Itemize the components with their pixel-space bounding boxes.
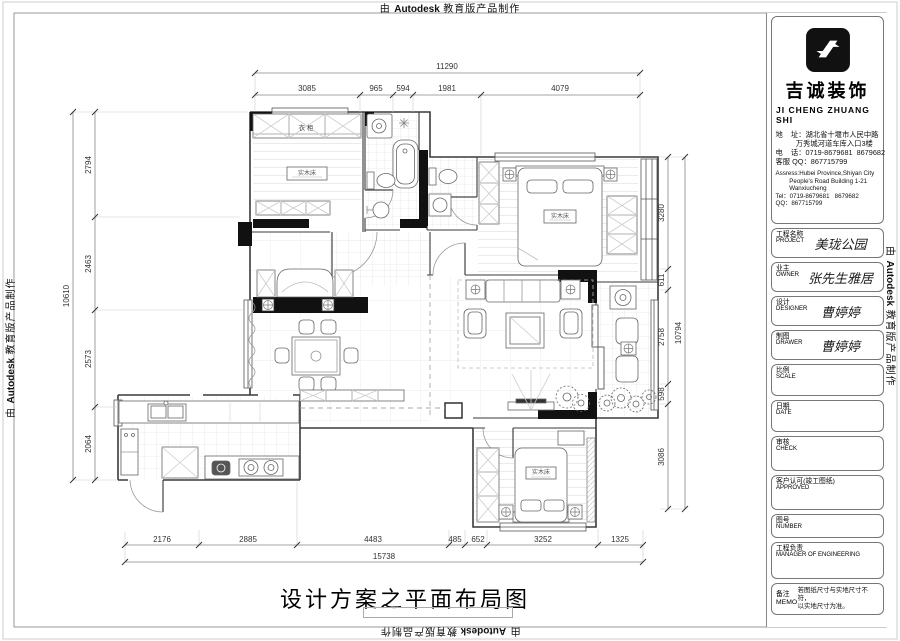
company-qq-line: 客服 QQ：867715799 (776, 157, 880, 166)
svg-text:965: 965 (369, 84, 383, 93)
structural-column (445, 403, 462, 418)
drawing-sheet: 衣柜 实木床 (0, 0, 900, 641)
svg-text:2064: 2064 (84, 435, 93, 453)
svg-text:10610: 10610 (62, 284, 71, 307)
field-drawer: 制图DRAWER 曹婷婷 (771, 330, 884, 360)
svg-text:3085: 3085 (298, 84, 316, 93)
svg-text:3280: 3280 (657, 204, 666, 222)
field-designer-value: 曹婷婷 (772, 297, 883, 325)
company-address-line: 万秀城河道车库入口3楼 (776, 139, 880, 148)
wardrobe-label: 衣柜 (299, 123, 316, 132)
field-engineering: 工程负责MANAGER OF ENGINEERING (771, 542, 884, 579)
field-approved: 客户认可(竣工图纸)APPROVED (771, 475, 884, 510)
third-bed-label: 实木床 (532, 468, 550, 476)
floor-plan-canvas: 衣柜 实木床 (0, 0, 900, 641)
svg-text:611: 611 (657, 273, 666, 286)
svg-text:2885: 2885 (239, 535, 257, 544)
watermark-right: 由 Autodesk 教育版产品制作 (884, 246, 899, 387)
field-project: 工程名称PROJECT 美珑公园 (771, 228, 884, 258)
company-name-en: JI CHENG ZHUANG SHI (776, 105, 879, 125)
title-block: 吉诚装饰 JI CHENG ZHUANG SHI 地 址：湖北省十堰市人民中路 … (766, 13, 887, 627)
field-memo: 备注MEMO 若图纸尺寸与实地尺寸不符，以实地尺寸为准。 (771, 583, 884, 615)
svg-text:594: 594 (396, 84, 410, 93)
company-address-en: Wanxiucheng (776, 185, 880, 193)
svg-text:11290: 11290 (436, 62, 458, 71)
field-project-value: 美珑公园 (772, 229, 883, 257)
svg-text:485: 485 (448, 535, 462, 544)
company-address-en: People's Road Building 1-21 (776, 178, 880, 186)
field-owner: 业主OWNER 张先生雅居 (771, 262, 884, 292)
svg-text:4079: 4079 (551, 84, 569, 93)
company-tel-en: Tel：0719-8679681 8679682 (776, 193, 880, 201)
svg-text:2758: 2758 (657, 328, 666, 346)
svg-text:652: 652 (471, 535, 485, 544)
field-date: 日期DATE (771, 400, 884, 432)
svg-text:2463: 2463 (84, 255, 93, 273)
field-owner-value: 张先生雅居 (772, 263, 883, 291)
field-number: 图号NUMBER (771, 514, 884, 538)
svg-text:2176: 2176 (153, 535, 171, 544)
master-bed-label: 实木床 (551, 212, 569, 220)
company-phone-line: 电 话：0719-8679681 8679682 (776, 148, 880, 157)
field-designer: 设计DESIGNER 曹婷婷 (771, 296, 884, 326)
field-drawer-value: 曹婷婷 (772, 331, 883, 359)
company-block: 吉诚装饰 JI CHENG ZHUANG SHI 地 址：湖北省十堰市人民中路 … (771, 16, 884, 224)
svg-text:3252: 3252 (534, 535, 552, 544)
company-address-line: 地 址：湖北省十堰市人民中路 (776, 130, 880, 139)
svg-text:3086: 3086 (657, 448, 666, 466)
company-qq-en: QQ：867715799 (776, 200, 880, 208)
watermark-left: 由 Autodesk 教育版产品制作 (2, 277, 17, 418)
svg-text:2573: 2573 (84, 350, 93, 368)
svg-text:4483: 4483 (364, 535, 382, 544)
drawing-title-box (363, 607, 513, 618)
watermark-bottom: 由 Autodesk 教育版产品制作 (0, 625, 900, 640)
svg-text:1981: 1981 (438, 84, 456, 93)
svg-text:10794: 10794 (674, 321, 683, 344)
watermark-top: 由 Autodesk 教育版产品制作 (0, 0, 900, 15)
field-scale: 比例SCALE (771, 364, 884, 396)
svg-text:598: 598 (657, 387, 666, 401)
svg-text:15738: 15738 (373, 552, 396, 561)
company-logo-icon (805, 27, 851, 73)
second-bed-label: 实木床 (298, 169, 316, 177)
tv-console (257, 269, 353, 297)
company-name: 吉诚装饰 (786, 77, 870, 103)
svg-text:1325: 1325 (611, 535, 629, 544)
field-check: 审核CHECK (771, 436, 884, 471)
company-address-en: Assress:Hubei Province,Shiyan City (776, 170, 880, 178)
svg-text:2794: 2794 (84, 156, 93, 174)
